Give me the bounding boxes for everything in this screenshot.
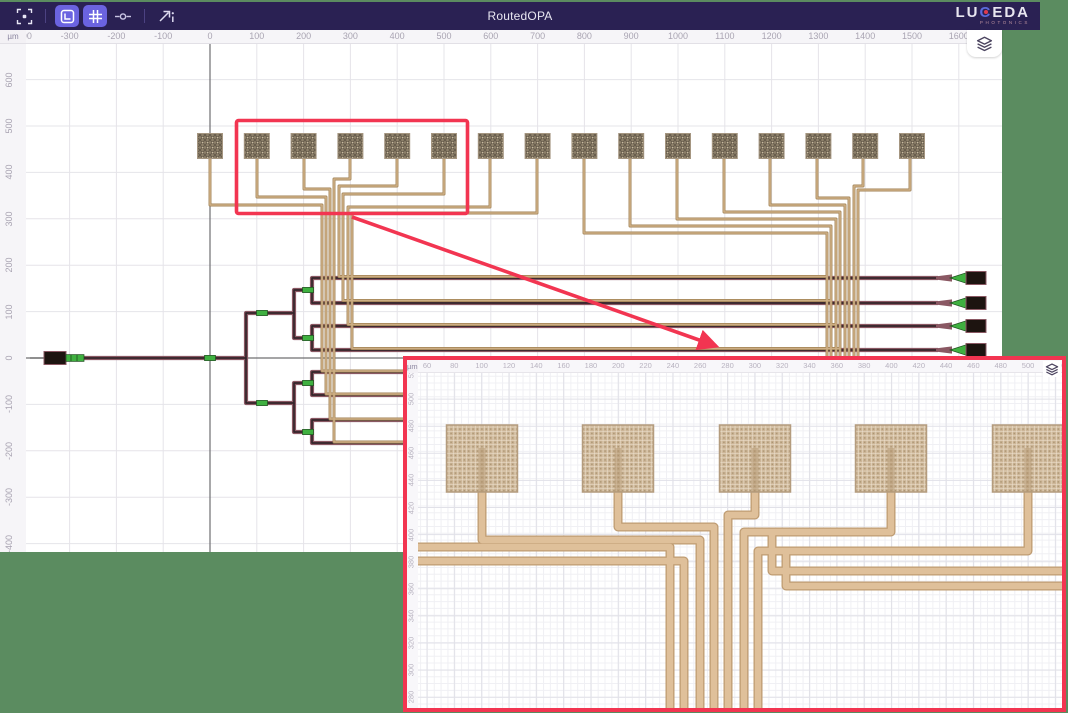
inset-ruler-tick: 420 xyxy=(407,501,416,514)
inset-ruler-tick: 180 xyxy=(585,361,598,370)
inset-pad-stub xyxy=(752,448,759,492)
inset-ruler-tick: 340 xyxy=(803,361,816,370)
inset-ruler-tick: 60 xyxy=(423,361,431,370)
ruler-tick: 100 xyxy=(4,304,14,319)
ruler-tick: 200 xyxy=(4,258,14,273)
inset-layers-button[interactable] xyxy=(1043,361,1061,377)
bondpad[interactable] xyxy=(806,134,831,159)
ruler-tick: 300 xyxy=(4,211,14,226)
ruler-tick: 0 xyxy=(4,355,14,360)
ruler-tick: 800 xyxy=(577,31,592,41)
toolbar: RoutedOPA LUCEDA PHOTONICS xyxy=(0,2,1040,30)
inset-vertical-ruler: 520500480460440420400380360340320300280 xyxy=(407,373,418,708)
splitter-component xyxy=(303,429,314,434)
inset-pad-stub xyxy=(1025,448,1032,492)
bondpad[interactable] xyxy=(244,134,269,159)
inset-ruler-tick: 360 xyxy=(831,361,844,370)
inset-ruler-tick: 220 xyxy=(639,361,652,370)
inset-ruler-tick: 200 xyxy=(612,361,625,370)
coupler-body xyxy=(966,320,986,333)
inset-ruler-tick: 460 xyxy=(967,361,980,370)
inset-ruler-tick: 340 xyxy=(407,610,416,623)
screenshot-root: { "app": { "title": "RoutedOPA" }, "bran… xyxy=(0,0,1068,713)
ruler-tick: -200 xyxy=(107,31,125,41)
inset-ruler-tick: 500 xyxy=(407,393,416,406)
ruler-tick: -400 xyxy=(26,31,32,41)
ruler-tick: -300 xyxy=(4,488,14,506)
splitter-component xyxy=(205,355,216,360)
coupler-grating xyxy=(950,321,966,331)
inset-ruler-tick: 140 xyxy=(530,361,543,370)
vertical-ruler: 6005004003002001000-100-200-300-400 xyxy=(0,44,26,552)
ruler-tick: 600 xyxy=(4,72,14,87)
inset-ruler-tick: 380 xyxy=(858,361,871,370)
inset-canvas[interactable] xyxy=(418,373,1062,708)
ruler-tick: 700 xyxy=(530,31,545,41)
ruler-tick: 300 xyxy=(343,31,358,41)
coupler-body xyxy=(966,344,986,357)
inset-ruler-tick: 520 xyxy=(407,373,416,378)
ruler-tick: -100 xyxy=(4,395,14,413)
ruler-tick: 500 xyxy=(4,118,14,133)
bondpad[interactable] xyxy=(759,134,784,159)
ruler-tick: 1500 xyxy=(902,31,922,41)
inset-ruler-tick: 460 xyxy=(407,447,416,460)
ruler-tick: 0 xyxy=(207,31,212,41)
inset-ruler-tick: 280 xyxy=(721,361,734,370)
bondpad[interactable] xyxy=(853,134,878,159)
coupler-body xyxy=(966,297,986,310)
inset-ruler-tick: 420 xyxy=(912,361,925,370)
output-couplers xyxy=(936,272,986,357)
inset-ruler-tick: 80 xyxy=(450,361,458,370)
bondpad[interactable] xyxy=(666,134,691,159)
export-view-button[interactable] xyxy=(154,5,178,27)
ruler-tick: -200 xyxy=(4,442,14,460)
inset-ruler-tick: 440 xyxy=(940,361,953,370)
inset-ruler-tick: 300 xyxy=(407,664,416,677)
ruler-tick: 200 xyxy=(296,31,311,41)
inset-ruler-tick: 100 xyxy=(475,361,488,370)
fit-view-icon xyxy=(16,8,33,25)
layers-icon xyxy=(976,36,993,52)
waveguide xyxy=(294,403,405,432)
inset-metal-trace xyxy=(744,490,891,708)
inset-ruler-tick: 160 xyxy=(557,361,570,370)
inset-ruler-tick: 360 xyxy=(407,583,416,596)
metal-trace-fill xyxy=(334,156,405,442)
luceda-logo: LUCEDA PHOTONICS xyxy=(955,5,1030,26)
metal-trace xyxy=(352,156,840,349)
fit-view-button[interactable] xyxy=(12,5,36,27)
bondpad[interactable] xyxy=(338,134,363,159)
ruler-tick: 600 xyxy=(483,31,498,41)
inset-pad-stub xyxy=(888,448,895,492)
ruler-tick: -100 xyxy=(154,31,172,41)
input-coupler xyxy=(30,352,84,365)
inset-ruler-tick: 400 xyxy=(407,528,416,541)
ruler-tick: 400 xyxy=(390,31,405,41)
coupler-body xyxy=(966,272,986,285)
coupler-grating xyxy=(950,298,966,308)
inset-ruler-tick: 300 xyxy=(749,361,762,370)
inset-ruler-tick: 280 xyxy=(407,691,416,704)
inset-pad-stub xyxy=(479,448,486,492)
ruler-tick: 1000 xyxy=(668,31,688,41)
ruler-tick: 1300 xyxy=(808,31,828,41)
ruler-tick: 1600 xyxy=(949,31,969,41)
inset-ruler-tick: 120 xyxy=(503,361,516,370)
export-arrow-icon xyxy=(157,8,175,24)
waveguide-core xyxy=(66,278,938,358)
ruler-tick: 1100 xyxy=(715,31,734,41)
coupler-grating xyxy=(950,345,966,355)
zoom-inset-window[interactable]: µm 6080100120140160180200220240260280300… xyxy=(403,356,1066,712)
luceda-logo-c: C xyxy=(979,4,992,21)
inset-ruler-tick: 320 xyxy=(407,637,416,650)
layers-panel-tab[interactable] xyxy=(967,30,1002,57)
inset-ruler-tick: 240 xyxy=(667,361,680,370)
ruler-tick: 500 xyxy=(436,31,451,41)
bondpad[interactable] xyxy=(432,134,457,159)
ruler-tick: 400 xyxy=(4,165,14,180)
toggle-rulers-button[interactable] xyxy=(55,5,79,27)
horizontal-ruler: -400-300-200-100010020030040050060070080… xyxy=(26,30,1002,44)
bondpad[interactable] xyxy=(291,134,316,159)
bondpad-row xyxy=(198,134,925,159)
inset-ruler-tick: 480 xyxy=(407,420,416,433)
inset-ruler-tick: 480 xyxy=(994,361,1007,370)
bondpad[interactable] xyxy=(385,134,410,159)
toolbar-separator xyxy=(144,9,145,23)
bondpad[interactable] xyxy=(712,134,737,159)
bondpad[interactable] xyxy=(198,134,223,159)
coupler-grating xyxy=(950,273,966,283)
ruler-icon xyxy=(60,9,75,24)
inset-metal-trace xyxy=(418,561,684,708)
toggle-ports-button[interactable] xyxy=(111,5,135,27)
inset-metal-traces xyxy=(418,490,1062,708)
inset-metal-trace-fill xyxy=(744,490,891,708)
inset-ruler-tick: 320 xyxy=(776,361,789,370)
splitter-component xyxy=(257,400,268,405)
metal-trace-fill xyxy=(352,156,840,349)
bondpad[interactable] xyxy=(525,134,550,159)
splitter-component xyxy=(303,335,314,340)
ruler-tick: -400 xyxy=(4,535,14,552)
inset-pad-stub xyxy=(615,448,622,492)
inset-ruler-tick: 400 xyxy=(885,361,898,370)
inset-ruler-unit-label: µm xyxy=(407,360,418,373)
toggle-grid-button[interactable] xyxy=(83,5,107,27)
grid-icon xyxy=(88,9,103,24)
splitter-component xyxy=(303,287,314,292)
bondpad[interactable] xyxy=(572,134,597,159)
luceda-logo-text: LUCEDA xyxy=(955,5,1030,20)
luceda-logo-subtitle: PHOTONICS xyxy=(955,21,1030,26)
inset-ruler-tick: 380 xyxy=(407,555,416,568)
splitter-components xyxy=(205,287,314,434)
waveguide xyxy=(66,278,938,358)
splitter-component xyxy=(303,380,314,385)
port-icon xyxy=(114,9,132,24)
toolbar-button-group xyxy=(0,5,178,27)
ruler-tick: -300 xyxy=(61,31,79,41)
ruler-unit-label: µm xyxy=(0,30,26,44)
inset-ruler-tick: 500 xyxy=(1022,361,1035,370)
ruler-tick: 1200 xyxy=(762,31,782,41)
inset-metal-trace-fill xyxy=(418,561,684,708)
inset-ruler-tick: 440 xyxy=(407,474,416,487)
ruler-tick: 100 xyxy=(249,31,264,41)
bondpad[interactable] xyxy=(900,134,925,159)
inset-ruler-tick: 260 xyxy=(694,361,707,370)
splitter-component xyxy=(257,310,268,315)
bondpad[interactable] xyxy=(619,134,644,159)
toolbar-separator xyxy=(45,9,46,23)
metal-trace xyxy=(334,156,405,442)
ruler-tick: 1400 xyxy=(855,31,875,41)
bondpad[interactable] xyxy=(478,134,503,159)
ruler-tick: 900 xyxy=(624,31,639,41)
layers-icon xyxy=(1045,363,1059,376)
inset-horizontal-ruler: 6080100120140160180200220240260280300320… xyxy=(418,360,1062,373)
inset-drawing xyxy=(418,373,1062,708)
